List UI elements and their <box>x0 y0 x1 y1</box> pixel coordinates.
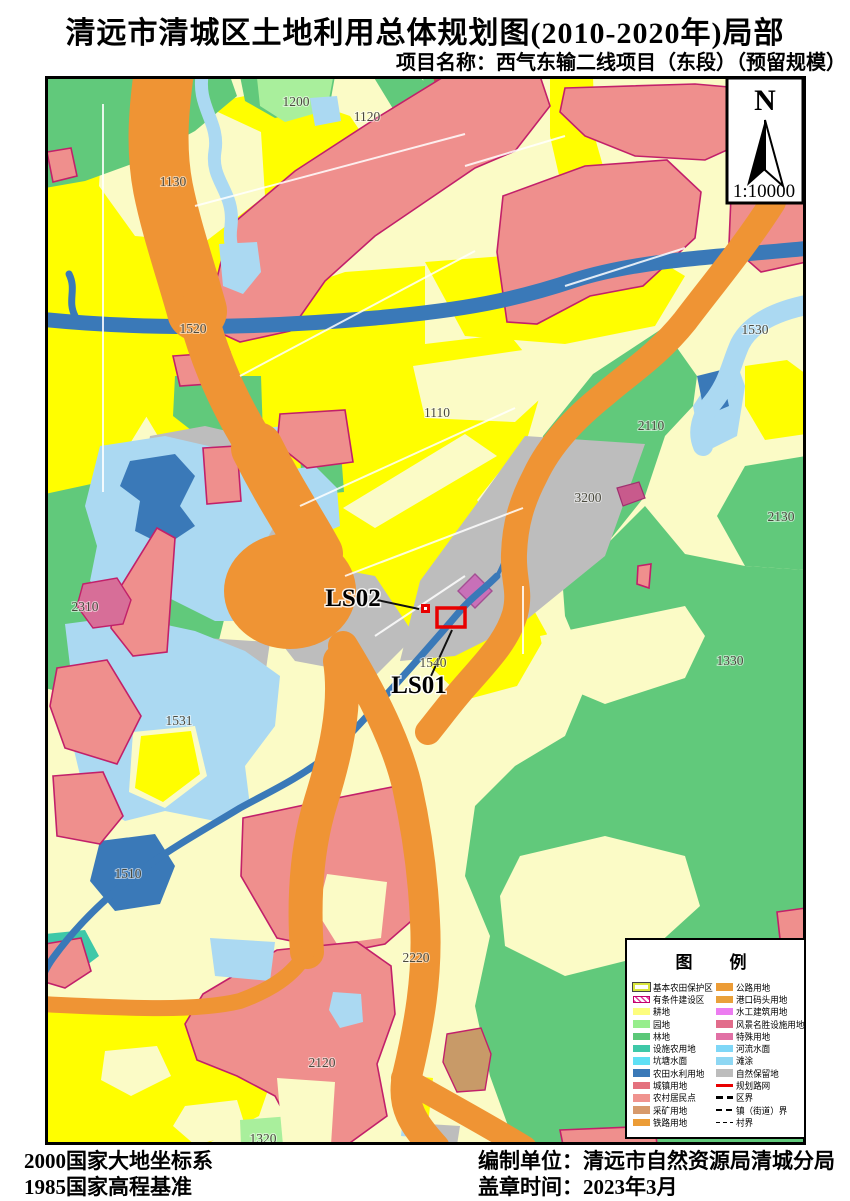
legend-item: 农村居民点 <box>633 1092 716 1104</box>
legend-swatch-box <box>633 1045 650 1053</box>
north-label: N <box>754 84 776 117</box>
legend-label: 镇（街道）界 <box>736 1104 787 1117</box>
legend-item: 公路用地 <box>716 981 799 993</box>
compiling-agency: 编制单位：清远市自然资源局清城分局 <box>478 1148 835 1174</box>
legend-item: 自然保留地 <box>716 1067 799 1079</box>
legend-swatch-box <box>633 1106 650 1114</box>
legend-swatch-box <box>716 1057 733 1065</box>
legend-label: 采矿用地 <box>653 1104 687 1117</box>
map-label-LS01: LS01 <box>391 672 447 699</box>
map-label-2130: 2130 <box>768 509 795 524</box>
legend-swatch-dashthin <box>716 1122 733 1123</box>
map-label-1540: 1540 <box>420 655 447 670</box>
legend-label: 园地 <box>653 1018 670 1031</box>
legend-swatch-box <box>633 1094 650 1102</box>
legend-label: 区界 <box>736 1091 753 1104</box>
legend-swatch-box <box>716 1033 733 1041</box>
legend-label: 港口码头用地 <box>736 993 787 1006</box>
legend-item: 镇（街道）界 <box>716 1104 799 1116</box>
legend-item: 区界 <box>716 1092 799 1104</box>
legend-label: 林地 <box>653 1030 670 1043</box>
legend-label: 滩涂 <box>736 1054 753 1067</box>
map-label-1130: 1130 <box>160 174 187 189</box>
legend-item: 农田水利用地 <box>633 1067 716 1079</box>
legend-label: 设施农用地 <box>653 1042 696 1055</box>
legend-swatch-box <box>716 1020 733 1028</box>
legend-label: 铁路用地 <box>653 1116 687 1129</box>
legend-item: 铁路用地 <box>633 1116 716 1128</box>
legend-column-left: 基本农田保护区有条件建设区耕地园地林地设施农用地坑塘水面农田水利用地城镇用地农村… <box>633 981 716 1129</box>
legend-swatch-box <box>633 1020 650 1028</box>
legend-item: 城镇用地 <box>633 1079 716 1091</box>
legend-swatch-dashmed <box>716 1109 733 1111</box>
legend-item: 采矿用地 <box>633 1104 716 1116</box>
legend-item: 规划路网 <box>716 1079 799 1091</box>
legend-swatch-box <box>716 983 733 991</box>
map-label-2310: 2310 <box>72 599 99 614</box>
legend-swatch-box <box>716 1045 733 1053</box>
legend-item: 港口码头用地 <box>716 993 799 1005</box>
legend-item: 特殊用地 <box>716 1030 799 1042</box>
legend-item: 园地 <box>633 1018 716 1030</box>
legend-item: 滩涂 <box>716 1055 799 1067</box>
legend-item: 河流水面 <box>716 1042 799 1054</box>
legend-label: 农村居民点 <box>653 1091 696 1104</box>
legend-label: 规划路网 <box>736 1079 770 1092</box>
legend-label: 风景名胜设施用地 <box>736 1018 804 1031</box>
legend-item: 基本农田保护区 <box>633 981 716 993</box>
legend-swatch-box <box>633 1082 650 1090</box>
legend-swatch-box <box>633 1119 650 1127</box>
map-label-1330: 1330 <box>717 653 744 668</box>
legend-swatch-redline <box>716 1084 733 1088</box>
geodetic-datum: 2000国家大地坐标系 <box>24 1148 213 1174</box>
map-label-1510: 1510 <box>115 866 142 881</box>
legend-item: 水工建筑用地 <box>716 1006 799 1018</box>
legend-swatch-box <box>633 1057 650 1065</box>
legend-swatch-box <box>633 1069 650 1077</box>
legend-swatch-box <box>716 996 733 1004</box>
map-label-1120: 1120 <box>354 109 381 124</box>
map-label-1200: 1200 <box>283 94 310 109</box>
legend-label: 河流水面 <box>736 1042 770 1055</box>
map-label-2120: 2120 <box>309 1055 336 1070</box>
agency-notes: 编制单位：清远市自然资源局清城分局 盖章时间：2023年3月 <box>478 1148 835 1200</box>
legend-label: 有条件建设区 <box>653 993 704 1006</box>
map-label-1520: 1520 <box>180 321 207 336</box>
legend-item: 风景名胜设施用地 <box>716 1018 799 1030</box>
legend-label: 耕地 <box>653 1005 670 1018</box>
legend-swatch-hatch <box>633 996 650 1004</box>
map-label-1110: 1110 <box>424 405 450 420</box>
map-label-LS02: LS02 <box>325 585 381 612</box>
legend: 图 例 基本农田保护区有条件建设区耕地园地林地设施农用地坑塘水面农田水利用地城镇… <box>625 938 806 1139</box>
legend-item: 设施农用地 <box>633 1042 716 1054</box>
legend-item: 有条件建设区 <box>633 993 716 1005</box>
ls02-site-marker-center <box>424 607 427 610</box>
legend-label: 村界 <box>736 1116 753 1129</box>
legend-swatch-openbox <box>633 983 650 991</box>
datum-notes: 2000国家大地坐标系 1985国家高程基准 <box>24 1148 213 1200</box>
legend-label: 城镇用地 <box>653 1079 687 1092</box>
map-label-1530: 1530 <box>742 322 769 337</box>
project-subtitle: 项目名称：西气东输二线项目（东段）（预留规模） <box>396 46 846 75</box>
legend-swatch-box <box>633 1033 650 1041</box>
legend-label: 农田水利用地 <box>653 1067 704 1080</box>
legend-column-right: 公路用地港口码头用地水工建筑用地风景名胜设施用地特殊用地河流水面滩涂自然保留地规… <box>716 981 799 1129</box>
seal-date: 盖章时间：2023年3月 <box>478 1174 835 1200</box>
legend-swatch-box <box>633 1008 650 1016</box>
legend-label: 坑塘水面 <box>653 1054 687 1067</box>
map-scale: 1:10000 <box>733 181 795 202</box>
legend-item: 村界 <box>716 1116 799 1128</box>
legend-swatch-dashbold <box>716 1096 733 1099</box>
legend-label: 公路用地 <box>736 981 770 994</box>
north-arrow-box: N 1:10000 <box>727 78 803 203</box>
legend-label: 自然保留地 <box>736 1067 779 1080</box>
legend-item: 坑塘水面 <box>633 1055 716 1067</box>
map-label-1531: 1531 <box>166 713 193 728</box>
planning-map-page: 清远市清城区土地利用总体规划图(2010-2020年)局部 项目名称：西气东输二… <box>0 0 850 1201</box>
legend-swatch-box <box>716 1008 733 1016</box>
legend-item: 林地 <box>633 1030 716 1042</box>
legend-swatch-box <box>716 1069 733 1077</box>
map-label-3200: 3200 <box>575 490 602 505</box>
legend-title: 图 例 <box>633 948 799 973</box>
map-label-2220: 2220 <box>403 950 430 965</box>
legend-item: 耕地 <box>633 1006 716 1018</box>
legend-label: 基本农田保护区 <box>653 981 713 994</box>
map-label-2110: 2110 <box>638 418 665 433</box>
legend-label: 特殊用地 <box>736 1030 770 1043</box>
legend-label: 水工建筑用地 <box>736 1005 787 1018</box>
height-datum: 1985国家高程基准 <box>24 1174 213 1200</box>
